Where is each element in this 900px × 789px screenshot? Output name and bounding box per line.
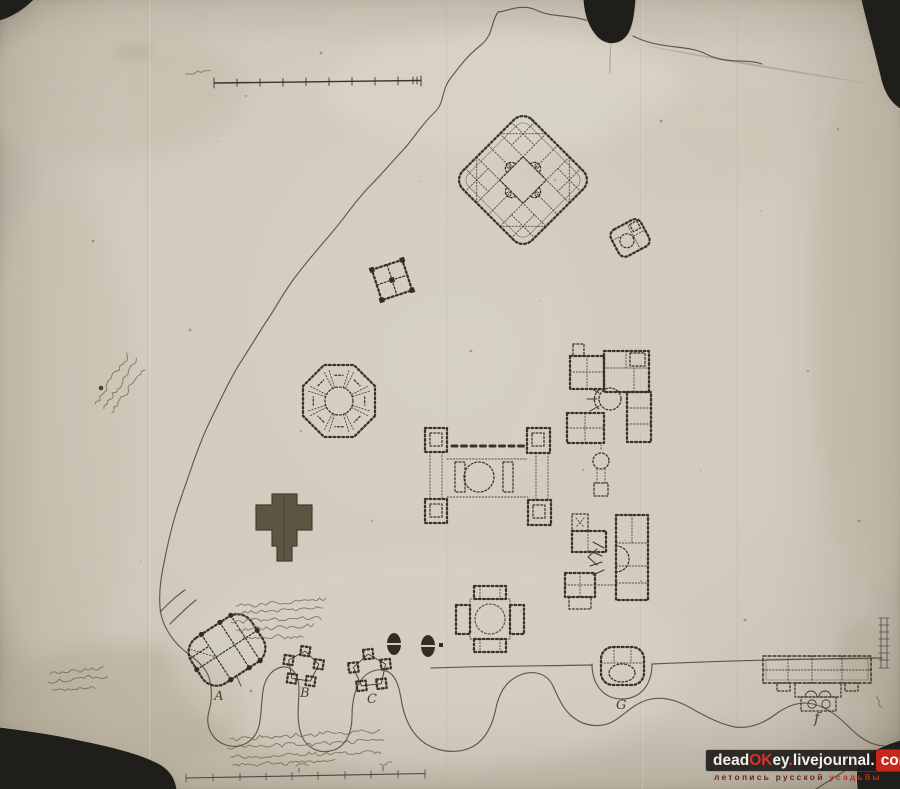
label-plan-g: G	[616, 698, 626, 713]
wm-dot2: .	[870, 752, 874, 769]
wm-tagline-left: летопись русской	[714, 772, 825, 782]
plan-drawing: А В С G f	[0, 0, 900, 789]
watermark-tagline: летопись русской усадьбы	[706, 772, 900, 782]
wm-tagline-right: усадьбы	[829, 772, 882, 782]
wm-dead: dead	[713, 752, 749, 769]
label-plan-b: В	[299, 686, 310, 701]
scanned-estate-plan: А В С G f deadOKey.livejournal.com летоп…	[0, 0, 900, 789]
label-plan-c: С	[367, 692, 377, 707]
wm-ey: ey	[772, 752, 788, 769]
wm-ok: OK	[749, 752, 772, 769]
wm-com-badge: com	[876, 750, 900, 771]
label-plan-a: А	[213, 689, 224, 704]
watermark: deadOKey.livejournal.com летопись русско…	[706, 750, 900, 782]
watermark-site-url: deadOKey.livejournal.com	[706, 750, 900, 771]
ink-dot	[99, 386, 104, 391]
wm-livejournal: livejournal	[793, 752, 871, 769]
